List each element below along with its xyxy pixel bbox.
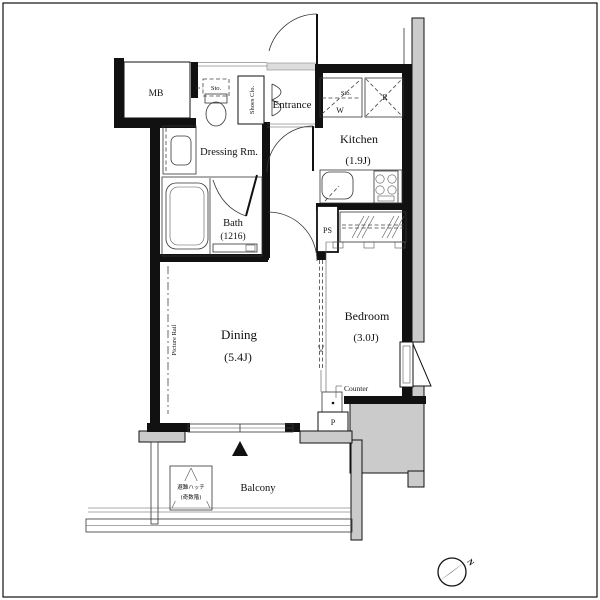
dining-size: (5.4J): [224, 350, 252, 364]
pipe-space-label: PS: [323, 226, 332, 235]
shoes-closet-label: Shoes Clo.: [249, 86, 256, 115]
kitchen-label: Kitchen: [340, 132, 378, 146]
entrance-label: Entrance: [272, 99, 311, 111]
meter-box-label: MB: [149, 89, 164, 99]
storage-kitchen-label: Sto.: [341, 90, 352, 97]
meter-box: MB: [124, 62, 190, 118]
counter-label: Counter: [344, 384, 369, 393]
pipe-space: PS: [317, 206, 338, 252]
refrigerator-label: R: [382, 93, 388, 102]
evacuation-hatch-label-2: (奇数階): [181, 493, 202, 501]
picture-rail-label: Picture Rail: [171, 324, 178, 355]
balcony-right-wall: [351, 440, 362, 540]
entrance-threshold: [267, 63, 317, 70]
storage-above-toilet-label: Sto.: [211, 85, 222, 92]
dressing-room-label: Dressing Rm.: [200, 147, 258, 158]
evacuation-hatch-label-1: 避難ハッチ: [177, 483, 205, 491]
bath-size: (1216): [220, 231, 245, 242]
dining-label: Dining: [221, 327, 258, 342]
kitchen-size: (1.9J): [345, 155, 371, 167]
floorplan-page: MB Sto. Shoes Clo. Entrance: [0, 0, 600, 600]
balcony-label: Balcony: [241, 483, 277, 494]
floorplan-drawing: MB Sto. Shoes Clo. Entrance: [0, 0, 600, 600]
bath-label: Bath: [223, 218, 244, 229]
bedroom-label: Bedroom: [345, 309, 390, 323]
washer-label: W: [336, 106, 344, 115]
bedroom-size: (3.0J): [353, 332, 379, 344]
pipe-shaft-label: P: [331, 418, 336, 427]
pipe-shaft: P: [318, 412, 348, 431]
